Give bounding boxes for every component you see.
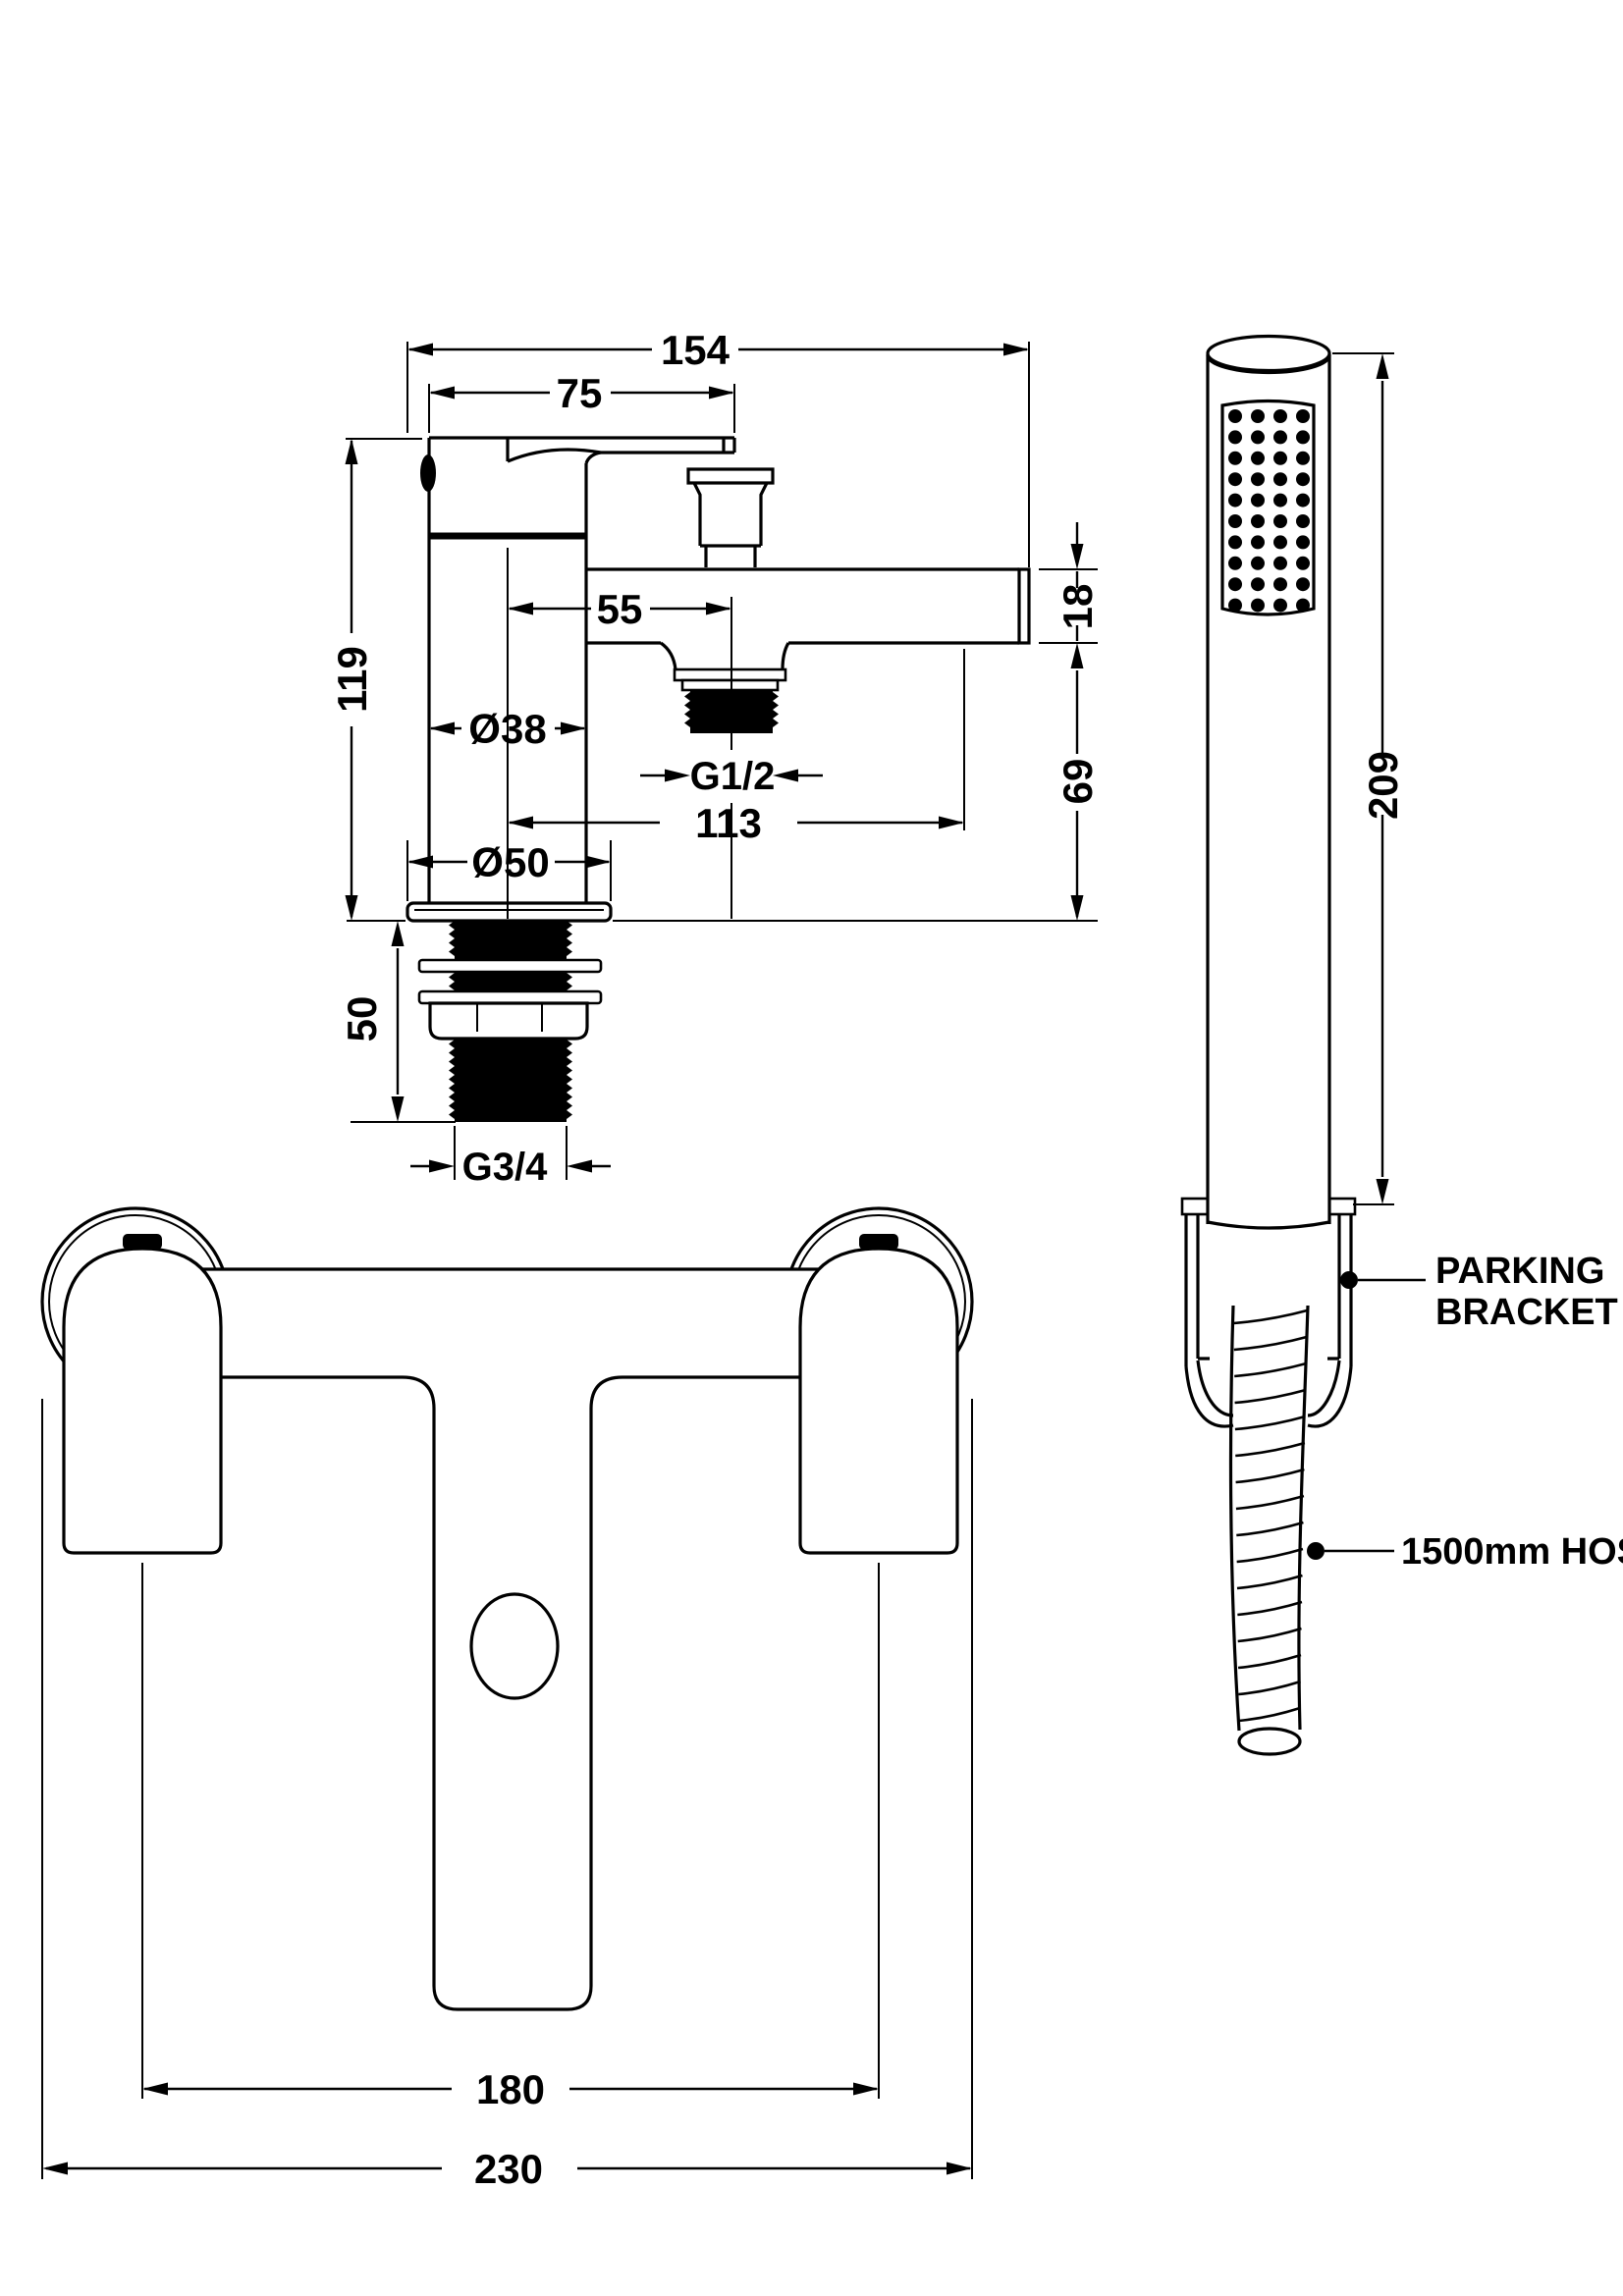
dim-projection: 154 <box>661 327 730 373</box>
dim-spout-depth: 18 <box>1055 584 1101 630</box>
dim-outlet-offset: 55 <box>597 586 643 632</box>
handset-top-rim <box>1208 337 1329 371</box>
outlet-flange-upper <box>675 669 785 680</box>
hose-ribs <box>1233 1310 1307 1721</box>
dim-handset-length: 209 <box>1360 751 1406 820</box>
dim-reach: 113 <box>695 800 762 846</box>
side-view: 154 75 119 55 Ø38 G1/2 113 Ø50 50 G3/4 1… <box>329 327 1101 1189</box>
lever-blade <box>429 438 734 463</box>
shank-thread-top <box>455 921 567 960</box>
dim-lever: 75 <box>557 370 603 416</box>
bracket-leader-dot <box>1340 1271 1358 1289</box>
front-view-outline <box>42 1208 972 2009</box>
shower-handset <box>1208 337 1329 1229</box>
label-parking-line1: PARKING <box>1435 1251 1604 1292</box>
dim-shank-thread: G3/4 <box>462 1146 548 1189</box>
shower-hose <box>1231 1306 1308 1754</box>
shank-washer-1 <box>419 960 601 972</box>
technical-drawing-page: 154 75 119 55 Ø38 G1/2 113 Ø50 50 G3/4 1… <box>0 0 1623 2296</box>
side-view-dimensions: 154 75 119 55 Ø38 G1/2 113 Ø50 50 G3/4 1… <box>329 327 1101 1189</box>
diverter-knob-front <box>471 1594 558 1698</box>
dim-body-dia: Ø38 <box>468 706 546 752</box>
spout-arm <box>586 569 1019 643</box>
label-hose: 1500mm HOSE <box>1401 1531 1623 1573</box>
dim-base-dia: Ø50 <box>471 839 549 885</box>
shank-thread-bottom <box>455 1039 567 1122</box>
dim-hole-centres: 180 <box>476 2066 545 2112</box>
annotations: PARKING BRACKET 1500mm HOSE <box>1307 1251 1623 1573</box>
right-lever <box>800 1249 957 1553</box>
handset-dimension: 209 <box>1332 353 1406 1204</box>
bracket-cup <box>1186 1361 1351 1426</box>
handset-view: 209 PARKING BRACKET 1500mm HOSE <box>1182 337 1623 1755</box>
dim-shank-len: 50 <box>339 996 385 1042</box>
outlet-flange-lower <box>682 680 778 690</box>
outlet-bell <box>661 643 788 669</box>
diverter-knob-body <box>694 483 767 567</box>
dim-height: 119 <box>329 646 375 713</box>
dim-clearance: 69 <box>1055 759 1101 805</box>
base-flange <box>407 903 611 921</box>
spout-end-cap <box>1019 569 1029 643</box>
label-parking-line2: BRACKET <box>1435 1292 1618 1333</box>
shank-thread-mid <box>455 972 567 991</box>
drawing-canvas: 154 75 119 55 Ø38 G1/2 113 Ø50 50 G3/4 1… <box>0 0 1623 2296</box>
shank-washer-2 <box>419 991 601 1003</box>
left-lever-cap <box>123 1234 162 1250</box>
hose-leader-dot <box>1307 1542 1325 1560</box>
diverter-knob <box>688 469 773 483</box>
hose-end-cap <box>1239 1729 1300 1754</box>
bracket-walls <box>1186 1214 1351 1366</box>
front-view: 180 230 <box>42 1208 972 2192</box>
dim-outlet-thread: G1/2 <box>690 755 776 798</box>
right-lever-cap <box>859 1234 898 1250</box>
shank-nut <box>430 1003 587 1039</box>
dim-overall-width: 230 <box>474 2146 543 2192</box>
parking-bracket <box>1182 1199 1355 1426</box>
left-lever <box>64 1249 221 1553</box>
body-button <box>420 454 436 492</box>
